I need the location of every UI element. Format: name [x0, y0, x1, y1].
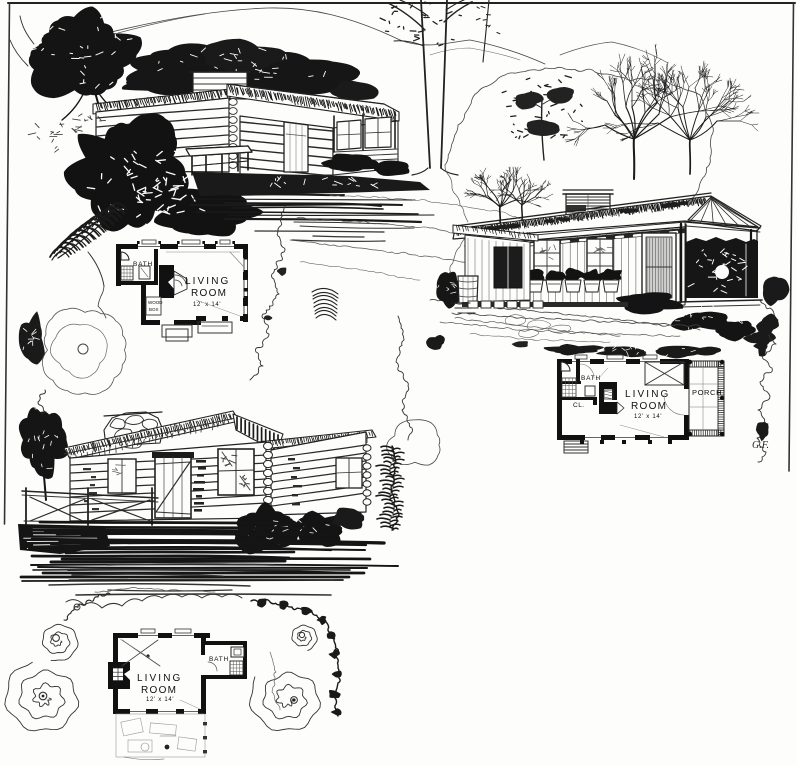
svg-text:WOOD: WOOD: [148, 300, 163, 305]
svg-text:ROOM: ROOM: [141, 685, 177, 696]
svg-text:LIVING: LIVING: [137, 673, 182, 684]
svg-text:PORCH: PORCH: [692, 388, 722, 397]
svg-text:ROOM: ROOM: [631, 401, 667, 412]
svg-text:BOX: BOX: [149, 307, 159, 312]
svg-text:ROOM: ROOM: [191, 288, 227, 299]
svg-text:BATH: BATH: [209, 656, 229, 663]
svg-text:BATH: BATH: [133, 261, 153, 268]
svg-text:12' x 14': 12' x 14': [146, 697, 174, 703]
svg-text:12' x 14': 12' x 14': [193, 302, 221, 308]
svg-text:LIVING: LIVING: [185, 276, 230, 287]
svg-text:LIVING: LIVING: [625, 389, 670, 400]
svg-text:G.F.: G.F.: [752, 440, 769, 451]
svg-text:12' x 14': 12' x 14': [634, 414, 662, 420]
svg-text:CL.: CL.: [573, 402, 585, 409]
